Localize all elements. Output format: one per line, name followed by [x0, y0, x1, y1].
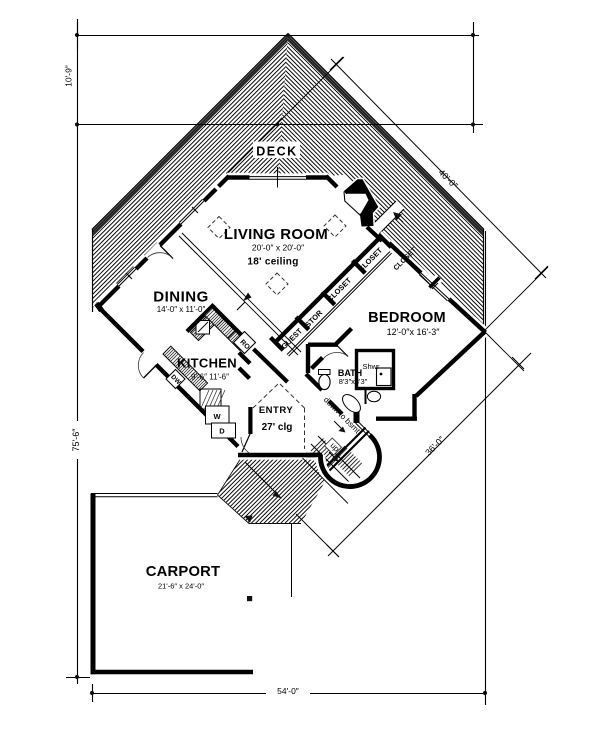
svg-text:BEDROOM: BEDROOM	[368, 310, 446, 326]
svg-text:54'-0″: 54'-0″	[277, 686, 299, 696]
svg-text:27' clg: 27' clg	[262, 422, 293, 433]
svg-text:9'-6″ 11'-6″: 9'-6″ 11'-6″	[191, 373, 229, 382]
svg-text:18' ceiling: 18' ceiling	[247, 257, 298, 268]
svg-text:14'-0″ x 11'-0″: 14'-0″ x 11'-0″	[157, 305, 206, 314]
svg-text:W: W	[213, 412, 221, 421]
svg-text:ENTRY: ENTRY	[259, 405, 294, 416]
svg-text:KITCHEN: KITCHEN	[177, 356, 237, 371]
svg-text:75'-6″: 75'-6″	[71, 428, 81, 452]
svg-text:DINING: DINING	[153, 289, 209, 306]
svg-text:D: D	[219, 427, 225, 436]
svg-text:CARPORT: CARPORT	[146, 564, 221, 580]
svg-text:Shwr: Shwr	[362, 362, 380, 371]
svg-text:DECK: DECK	[256, 145, 297, 159]
svg-text:8'3″x8'3″: 8'3″x8'3″	[339, 377, 368, 386]
svg-text:10'-9″: 10'-9″	[64, 65, 74, 87]
svg-text:21'-6″ x 24'-0″: 21'-6″ x 24'-0″	[158, 582, 204, 591]
svg-text:LIVING ROOM: LIVING ROOM	[224, 226, 328, 243]
svg-text:12'-0″x 16'-3″: 12'-0″x 16'-3″	[387, 327, 441, 337]
svg-text:20'-0″ x 20'-0″: 20'-0″ x 20'-0″	[252, 243, 304, 253]
